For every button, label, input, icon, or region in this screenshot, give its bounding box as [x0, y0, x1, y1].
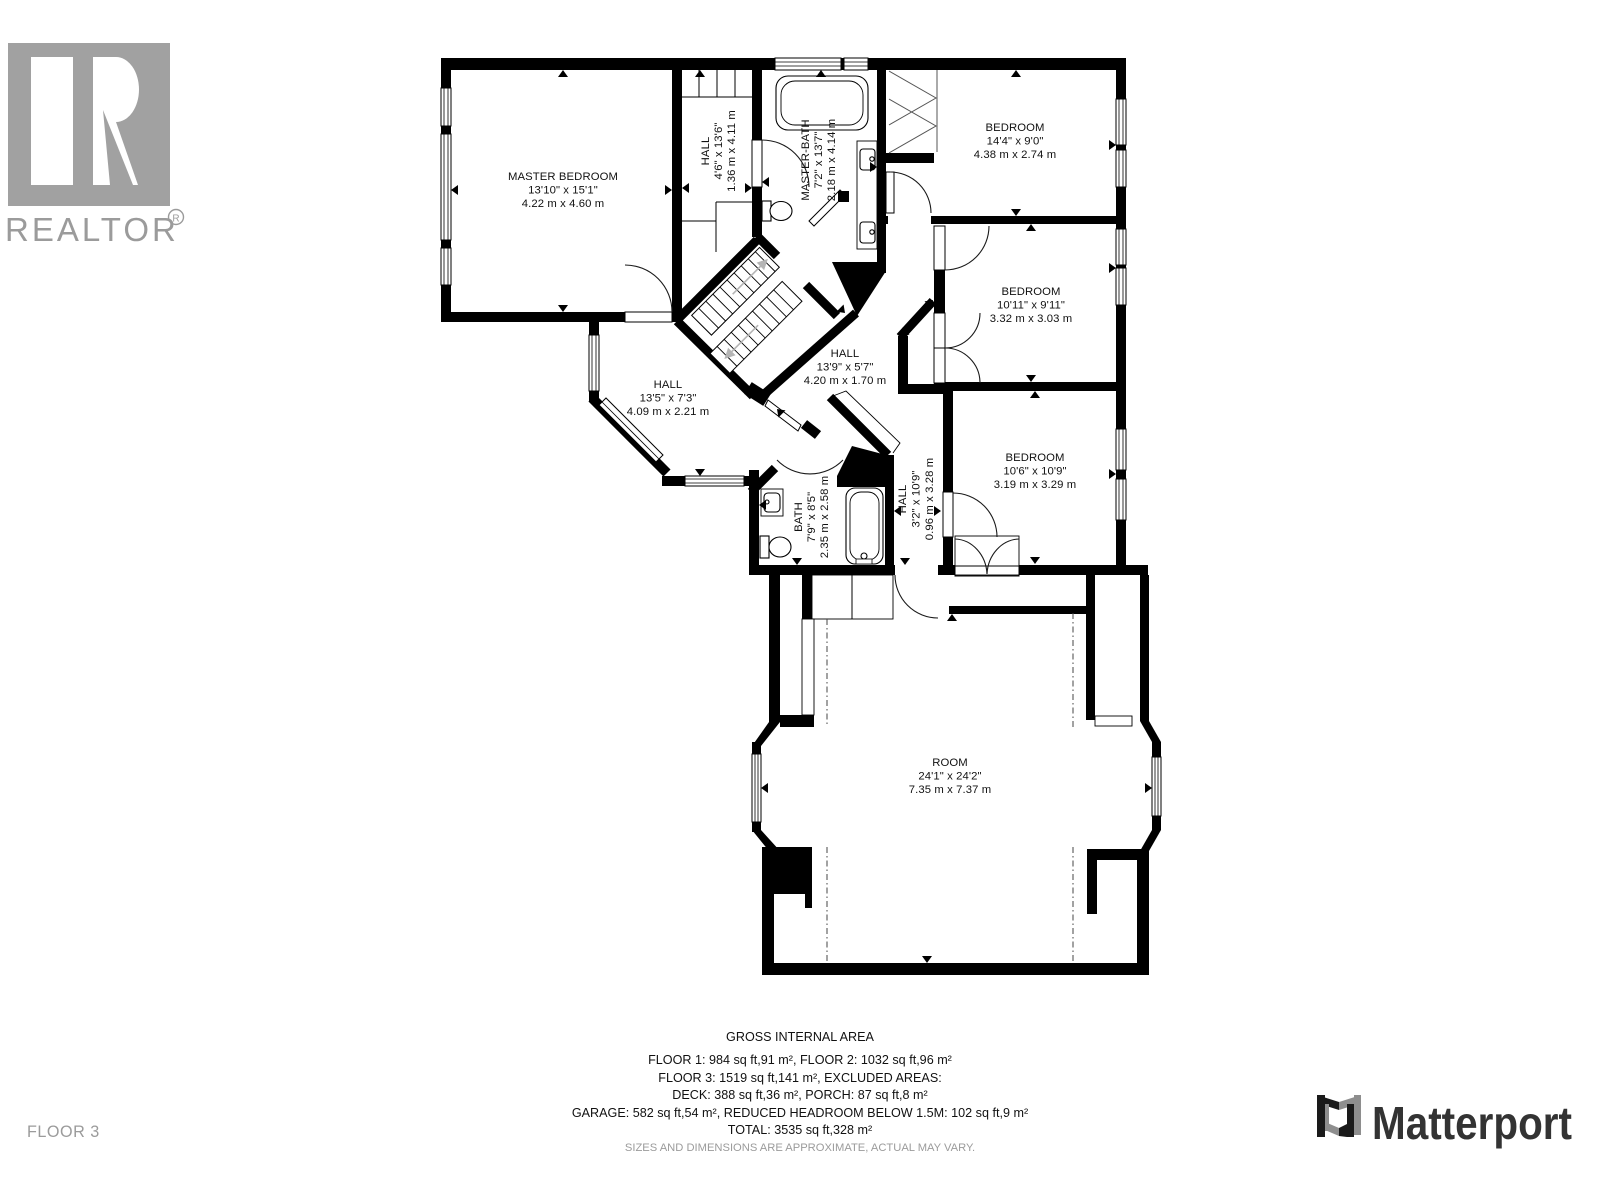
svg-text:24'1" x 24'2": 24'1" x 24'2" [918, 771, 981, 783]
svg-text:7'2" x 13'7": 7'2" x 13'7" [813, 132, 825, 189]
svg-text:BATH: BATH [793, 502, 805, 532]
svg-text:DECK: 388 sq ft,36 m², PORCH:: DECK: 388 sq ft,36 m², PORCH: 87 sq ft,8… [672, 1088, 927, 1102]
svg-text:2.35 m x 2.58 m: 2.35 m x 2.58 m [819, 476, 831, 559]
svg-text:4.38 m x 2.74 m: 4.38 m x 2.74 m [974, 149, 1057, 161]
svg-text:10'11" x 9'11": 10'11" x 9'11" [997, 300, 1065, 312]
svg-text:14'4" x 9'0": 14'4" x 9'0" [987, 136, 1044, 148]
svg-text:HALL: HALL [700, 137, 712, 166]
svg-text:4'6" x 13'6": 4'6" x 13'6" [713, 123, 725, 180]
svg-text:2.18 m x 4.14 m: 2.18 m x 4.14 m [826, 119, 838, 202]
svg-text:Matterport: Matterport [1372, 1097, 1572, 1149]
svg-text:4.20 m x 1.70 m: 4.20 m x 1.70 m [804, 375, 887, 387]
svg-text:MASTER BEDROOM: MASTER BEDROOM [508, 171, 618, 183]
svg-text:HALL: HALL [831, 348, 860, 360]
svg-text:FLOOR 3: 1519 sq ft,141 m², EX: FLOOR 3: 1519 sq ft,141 m², EXCLUDED ARE… [658, 1071, 941, 1085]
svg-text:13'9" x 5'7": 13'9" x 5'7" [817, 362, 874, 374]
svg-text:BEDROOM: BEDROOM [985, 122, 1044, 134]
svg-text:BEDROOM: BEDROOM [1005, 452, 1064, 464]
svg-text:3'2" x 10'9": 3'2" x 10'9" [911, 471, 923, 528]
svg-text:10'6" x 10'9": 10'6" x 10'9" [1003, 466, 1066, 478]
svg-text:HALL: HALL [654, 379, 683, 391]
svg-text:3.19 m x 3.29 m: 3.19 m x 3.29 m [994, 479, 1077, 491]
svg-text:BEDROOM: BEDROOM [1001, 286, 1060, 298]
svg-text:ROOM: ROOM [932, 757, 968, 769]
svg-text:REALTOR: REALTOR [5, 211, 179, 248]
svg-text:3.32 m x 3.03 m: 3.32 m x 3.03 m [990, 313, 1073, 325]
svg-text:GROSS INTERNAL AREA: GROSS INTERNAL AREA [726, 1030, 874, 1044]
svg-text:4.09 m x 2.21 m: 4.09 m x 2.21 m [627, 406, 710, 418]
svg-text:FLOOR 3: FLOOR 3 [27, 1123, 100, 1141]
svg-text:MASTER-BATH: MASTER-BATH [800, 119, 812, 200]
svg-text:TOTAL: 3535 sq ft,328 m²: TOTAL: 3535 sq ft,328 m² [728, 1123, 872, 1137]
svg-text:FLOOR 1: 984 sq ft,91 m², FLOO: FLOOR 1: 984 sq ft,91 m², FLOOR 2: 1032 … [648, 1053, 952, 1067]
svg-text:4.22 m x 4.60 m: 4.22 m x 4.60 m [522, 198, 605, 210]
svg-text:HALL: HALL [897, 485, 909, 514]
svg-text:13'10" x 15'1": 13'10" x 15'1" [528, 185, 598, 197]
svg-text:GARAGE: 582 sq ft,54 m², REDUC: GARAGE: 582 sq ft,54 m², REDUCED HEADROO… [572, 1106, 1028, 1120]
svg-text:7'9" x 8'5": 7'9" x 8'5" [806, 492, 818, 543]
svg-text:R: R [172, 214, 179, 225]
svg-text:13'5" x 7'3": 13'5" x 7'3" [640, 393, 697, 405]
svg-text:1.36 m x 4.11 m: 1.36 m x 4.11 m [726, 110, 738, 192]
svg-text:SIZES AND DIMENSIONS ARE APPRO: SIZES AND DIMENSIONS ARE APPROXIMATE, AC… [625, 1142, 975, 1154]
svg-text:7.35 m x 7.37 m: 7.35 m x 7.37 m [909, 784, 992, 796]
svg-text:0.96 m x 3.28 m: 0.96 m x 3.28 m [924, 458, 936, 541]
